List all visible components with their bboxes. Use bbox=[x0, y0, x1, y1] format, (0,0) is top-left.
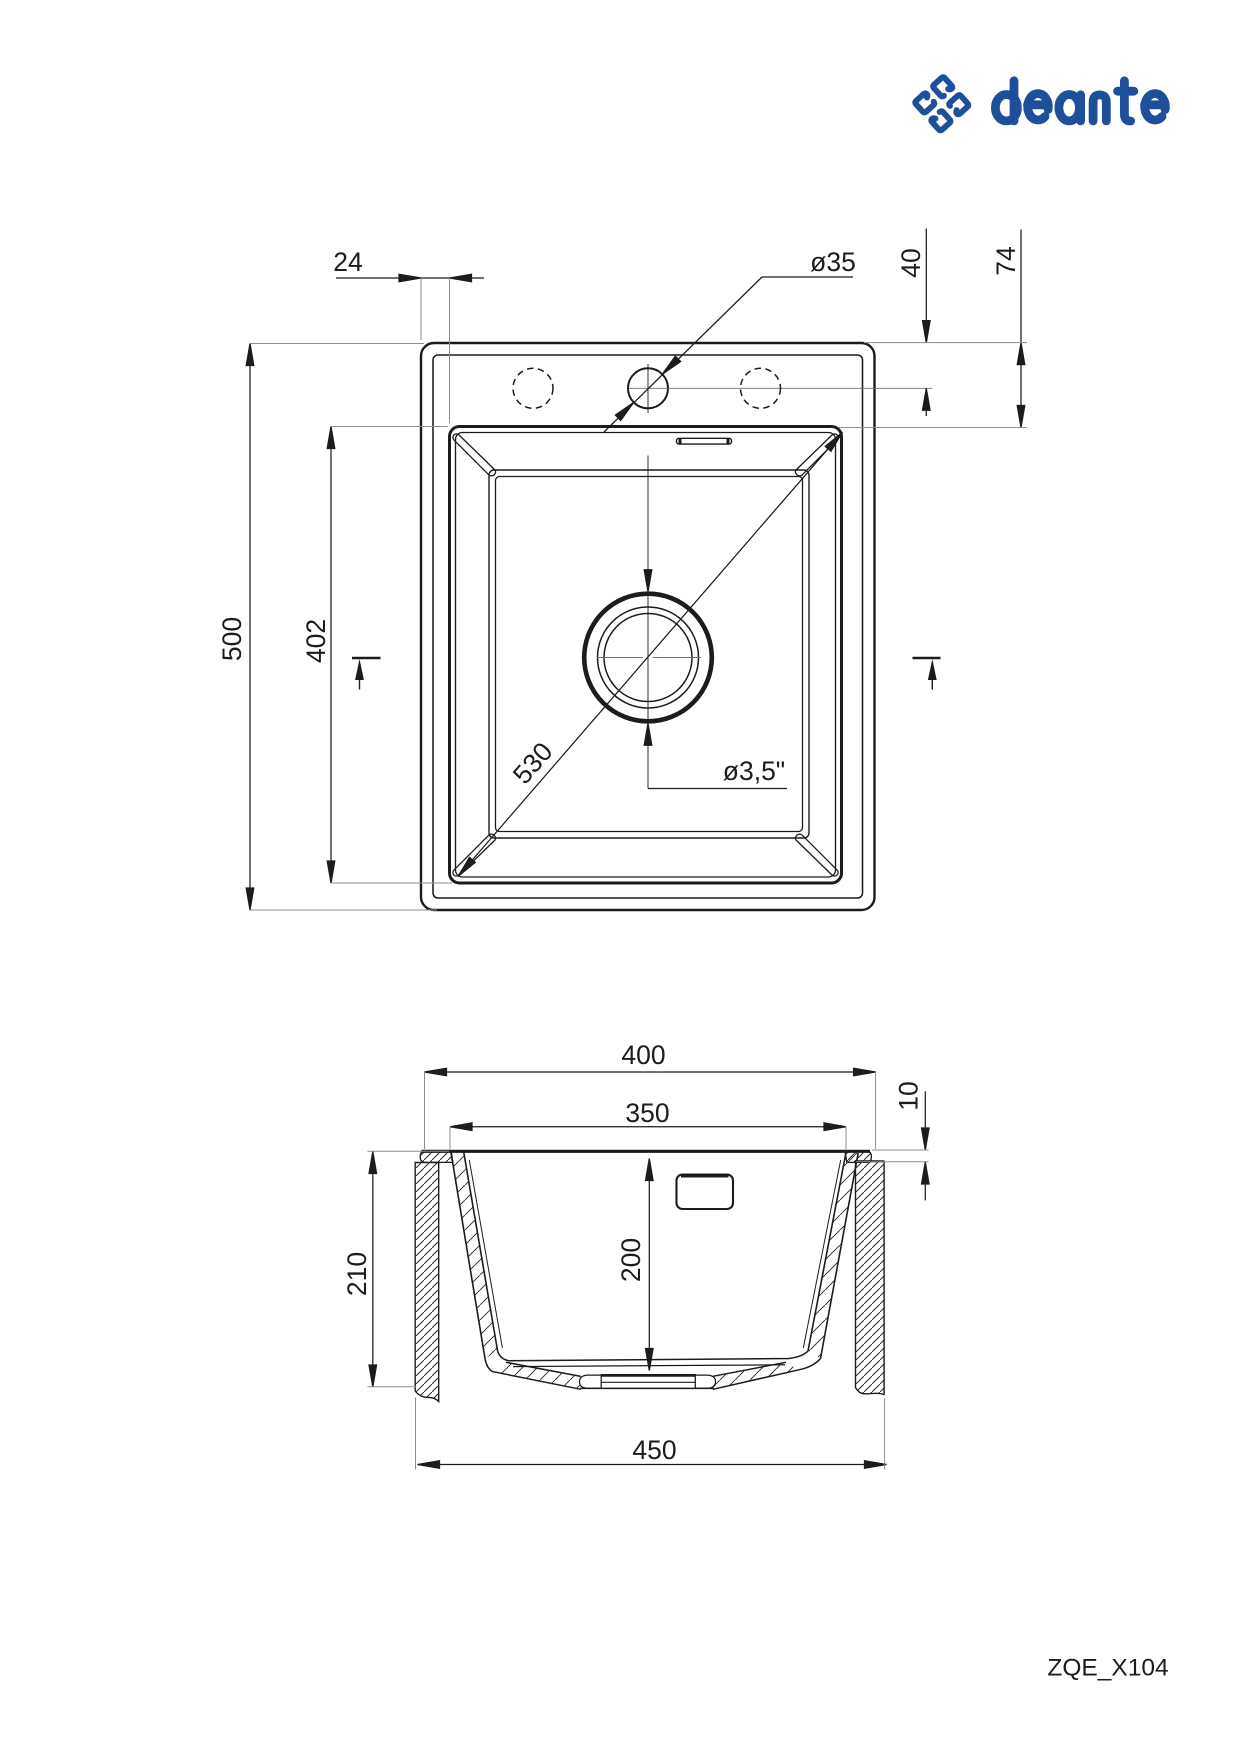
svg-text:ø35: ø35 bbox=[810, 247, 856, 277]
svg-text:ø3,5": ø3,5" bbox=[723, 756, 785, 786]
svg-text:ZQE_X104: ZQE_X104 bbox=[1047, 1655, 1168, 1682]
svg-text:40: 40 bbox=[896, 248, 926, 277]
svg-text:10: 10 bbox=[893, 1081, 923, 1110]
svg-text:24: 24 bbox=[333, 247, 362, 277]
svg-text:200: 200 bbox=[616, 1238, 646, 1282]
svg-text:500: 500 bbox=[217, 617, 247, 661]
svg-text:210: 210 bbox=[342, 1252, 372, 1296]
svg-text:402: 402 bbox=[301, 619, 331, 663]
svg-text:350: 350 bbox=[625, 1098, 669, 1128]
svg-text:450: 450 bbox=[632, 1435, 676, 1465]
svg-text:400: 400 bbox=[621, 1040, 665, 1070]
svg-text:74: 74 bbox=[991, 246, 1021, 275]
